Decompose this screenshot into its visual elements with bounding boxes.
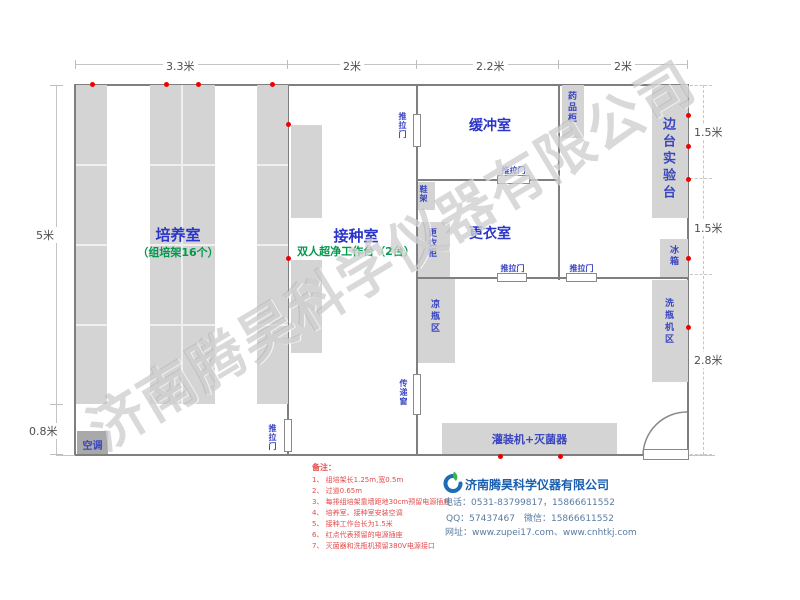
inoculation-room-sublabel: 双人超净工作台（2台） — [296, 243, 416, 259]
bottle-washer-area-label: 洗瓶机区 — [663, 298, 672, 346]
side-lab-bench-label: 边台实验台 — [661, 117, 674, 202]
sliding-door-label: 推拉门 — [398, 112, 406, 139]
dim-top-4: 2米 — [611, 58, 635, 74]
dim-left-1: 5米 — [33, 227, 57, 243]
socket-dot — [498, 454, 503, 459]
socket-dot — [558, 454, 563, 459]
socket-dot — [286, 122, 291, 127]
dim-right-2: 1.5米 — [691, 220, 726, 236]
note-item-7: 7、 灭菌器和洗瓶机预留380V电源接口 — [312, 541, 435, 551]
company-qq-wechat: QQ：57437467 微信：15866611552 — [446, 511, 614, 524]
dim-right-3: 2.8米 — [691, 352, 726, 368]
note-item-3: 3、 每排组培架靠墙距地30cm预留电源插座 — [312, 497, 450, 507]
company-phone: 电话：0531-83799817，15866611552 — [444, 495, 615, 508]
socket-dot — [686, 325, 691, 330]
transfer-window-label: 传递窗 — [399, 379, 407, 406]
note-item-2: 2、 过道0.65m — [312, 486, 362, 496]
floorplan-canvas: 培养室 （组培架16个） 接种室 双人超净工作台（2台） 缓冲室 更衣室 空调 … — [0, 0, 800, 600]
note-item-4: 4、 培养室、接种室安装空调 — [312, 508, 403, 518]
locker-label: 更衣柜 — [426, 228, 435, 258]
notes-title: 备注： — [312, 462, 336, 473]
note-item-6: 6、 红点代表预留的电源插座 — [312, 530, 403, 540]
socket-dot — [686, 177, 691, 182]
note-item-1: 1、 组培架长1.25m,宽0.5m — [312, 475, 403, 485]
socket-dot — [686, 113, 691, 118]
socket-dot — [286, 256, 291, 261]
shoe-rack-label: 鞋架 — [419, 185, 427, 203]
dim-left-2: 0.8米 — [26, 423, 61, 439]
filler-sterilizer-label: 灌装机+灭菌器 — [442, 431, 617, 447]
buffer-room-label: 缓冲室 — [450, 115, 530, 135]
sliding-door-label: 推拉门 — [495, 263, 530, 274]
cultivation-room-sublabel: （组培架16个） — [118, 244, 238, 260]
cultivation-room-label: 培养室 — [138, 224, 218, 245]
socket-dot — [270, 82, 275, 87]
sliding-door-label: 推拉门 — [268, 424, 276, 451]
dim-top-2: 2米 — [340, 58, 364, 74]
company-website: 网址：www.zupei17.com、www.cnhtkj.com — [445, 525, 637, 538]
changing-room-label: 更衣室 — [450, 223, 530, 243]
socket-dot — [196, 82, 201, 87]
socket-dot — [90, 82, 95, 87]
company-name: 济南腾昊科学仪器有限公司 — [465, 476, 609, 493]
air-conditioner-label: 空调 — [77, 437, 108, 452]
sliding-door-label: 推拉门 — [496, 165, 531, 176]
medicine-cabinet-label: 药品柜 — [566, 91, 575, 124]
company-logo-icon — [443, 471, 463, 495]
dim-top-1: 3.3米 — [163, 58, 198, 74]
socket-dot — [164, 82, 169, 87]
fridge-label: 冰箱 — [668, 245, 677, 267]
socket-dot — [686, 144, 691, 149]
sliding-door-label: 推拉门 — [564, 263, 599, 274]
note-item-5: 5、 接种工作台长为1.5米 — [312, 519, 393, 529]
dim-right-1: 1.5米 — [691, 124, 726, 140]
dim-top-3: 2.2米 — [473, 58, 508, 74]
cooling-bottle-area-label: 凉瓶区 — [429, 299, 438, 335]
socket-dot — [686, 256, 691, 261]
